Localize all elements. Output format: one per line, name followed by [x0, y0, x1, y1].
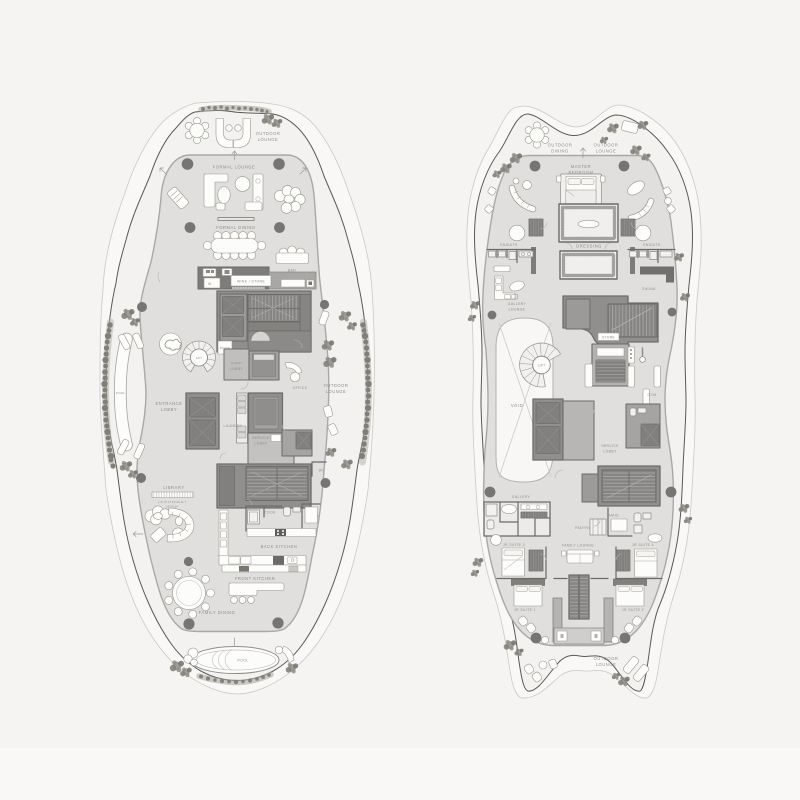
svg-text:LOBBY: LOBBY	[161, 407, 177, 412]
svg-text:BACK KITCHEN: BACK KITCHEN	[261, 544, 298, 549]
svg-text:ENSUITE: ENSUITE	[643, 243, 661, 247]
svg-text:FRONT KITCHEN: FRONT KITCHEN	[235, 576, 275, 581]
svg-text:MASTER: MASTER	[571, 164, 591, 169]
svg-text:ENTRANCE: ENTRANCE	[156, 401, 183, 406]
svg-text:OUTDOOR: OUTDOOR	[324, 383, 349, 388]
svg-text:OUTDOOR: OUTDOOR	[256, 131, 281, 136]
svg-text:+7N 7H 4T 6O 9N 3L 7: +7N 7H 4T 6O 9N 3L 7	[158, 501, 187, 504]
svg-text:FORMAL LOUNGE: FORMAL LOUNGE	[213, 165, 255, 170]
svg-text:GYM: GYM	[648, 393, 657, 397]
svg-text:JR SUITE 2: JR SUITE 2	[622, 608, 644, 612]
svg-text:JR SUITE 3: JR SUITE 3	[503, 543, 525, 547]
svg-text:LOBBY: LOBBY	[603, 450, 617, 454]
svg-text:DINING: DINING	[551, 149, 569, 154]
svg-text:SERVICE: SERVICE	[252, 436, 270, 440]
svg-text:POOL: POOL	[116, 391, 126, 395]
svg-text:FAMILY DINING: FAMILY DINING	[199, 610, 236, 615]
svg-text:LOUNGE: LOUNGE	[509, 308, 526, 312]
svg-text:GALLERY: GALLERY	[508, 302, 527, 306]
svg-text:OUTDOOR: OUTDOOR	[594, 656, 619, 661]
svg-text:LOBBY: LOBBY	[254, 442, 268, 446]
svg-text:WC: WC	[319, 469, 326, 473]
svg-text:LOUNGE: LOUNGE	[596, 149, 617, 154]
svg-text:COOK: COOK	[264, 511, 276, 515]
svg-text:OUTDOOR: OUTDOOR	[548, 143, 573, 148]
svg-text:DRESSING: DRESSING	[576, 244, 602, 249]
svg-text:ENSUITE: ENSUITE	[500, 243, 518, 247]
svg-text:SAUNA: SAUNA	[642, 287, 656, 291]
svg-text:MAID: MAID	[609, 514, 619, 518]
svg-text:FAMILY LOUNGE: FAMILY LOUNGE	[562, 544, 595, 548]
svg-text:LIFT: LIFT	[538, 364, 546, 368]
svg-text:JR SUITE 4: JR SUITE 4	[632, 543, 654, 547]
svg-text:LOUNGE: LOUNGE	[258, 137, 279, 142]
svg-text:WINE / STORE: WINE / STORE	[237, 280, 265, 284]
svg-text:LAUNDRY: LAUNDRY	[224, 424, 243, 428]
svg-text:LOBBY: LOBBY	[230, 367, 244, 371]
svg-text:POOL: POOL	[237, 659, 248, 663]
svg-text:LIBRARY: LIBRARY	[163, 485, 184, 490]
svg-text:JR SUITE 1: JR SUITE 1	[514, 608, 536, 612]
svg-text:W: W	[208, 282, 212, 286]
svg-text:LOUNGE: LOUNGE	[326, 389, 347, 394]
svg-text:OFFICE: OFFICE	[293, 386, 308, 390]
svg-text:FORMAL DINING: FORMAL DINING	[216, 225, 256, 230]
svg-text:STORE: STORE	[602, 336, 615, 340]
svg-text:SERVICE: SERVICE	[601, 444, 619, 448]
svg-text:LIFT: LIFT	[196, 356, 202, 360]
svg-text:GALLERY: GALLERY	[512, 495, 531, 499]
svg-text:VOID: VOID	[511, 403, 523, 408]
svg-text:PANTRY: PANTRY	[575, 526, 591, 530]
svg-text:LOUNGE: LOUNGE	[596, 662, 617, 667]
svg-text:GUEST: GUEST	[231, 361, 243, 365]
